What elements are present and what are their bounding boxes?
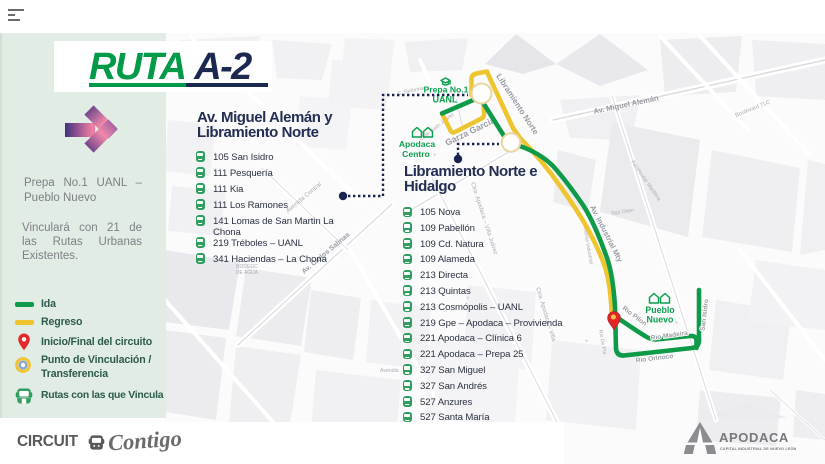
svg-text:+: + bbox=[675, 321, 679, 327]
svg-text:DE AGUA: DE AGUA bbox=[236, 270, 259, 276]
svg-text:Nuevo: Nuevo bbox=[647, 315, 675, 325]
svg-text:+: + bbox=[433, 153, 437, 159]
svg-text:Centro: Centro bbox=[402, 149, 430, 159]
svg-text:UANL: UANL bbox=[433, 95, 458, 105]
svg-text:Avenida: Avenida bbox=[380, 368, 399, 374]
svg-text:Prepa No.1: Prepa No.1 bbox=[424, 85, 469, 95]
svg-text:Pueblo: Pueblo bbox=[645, 305, 675, 315]
svg-text:Apodaca: Apodaca bbox=[399, 139, 436, 149]
